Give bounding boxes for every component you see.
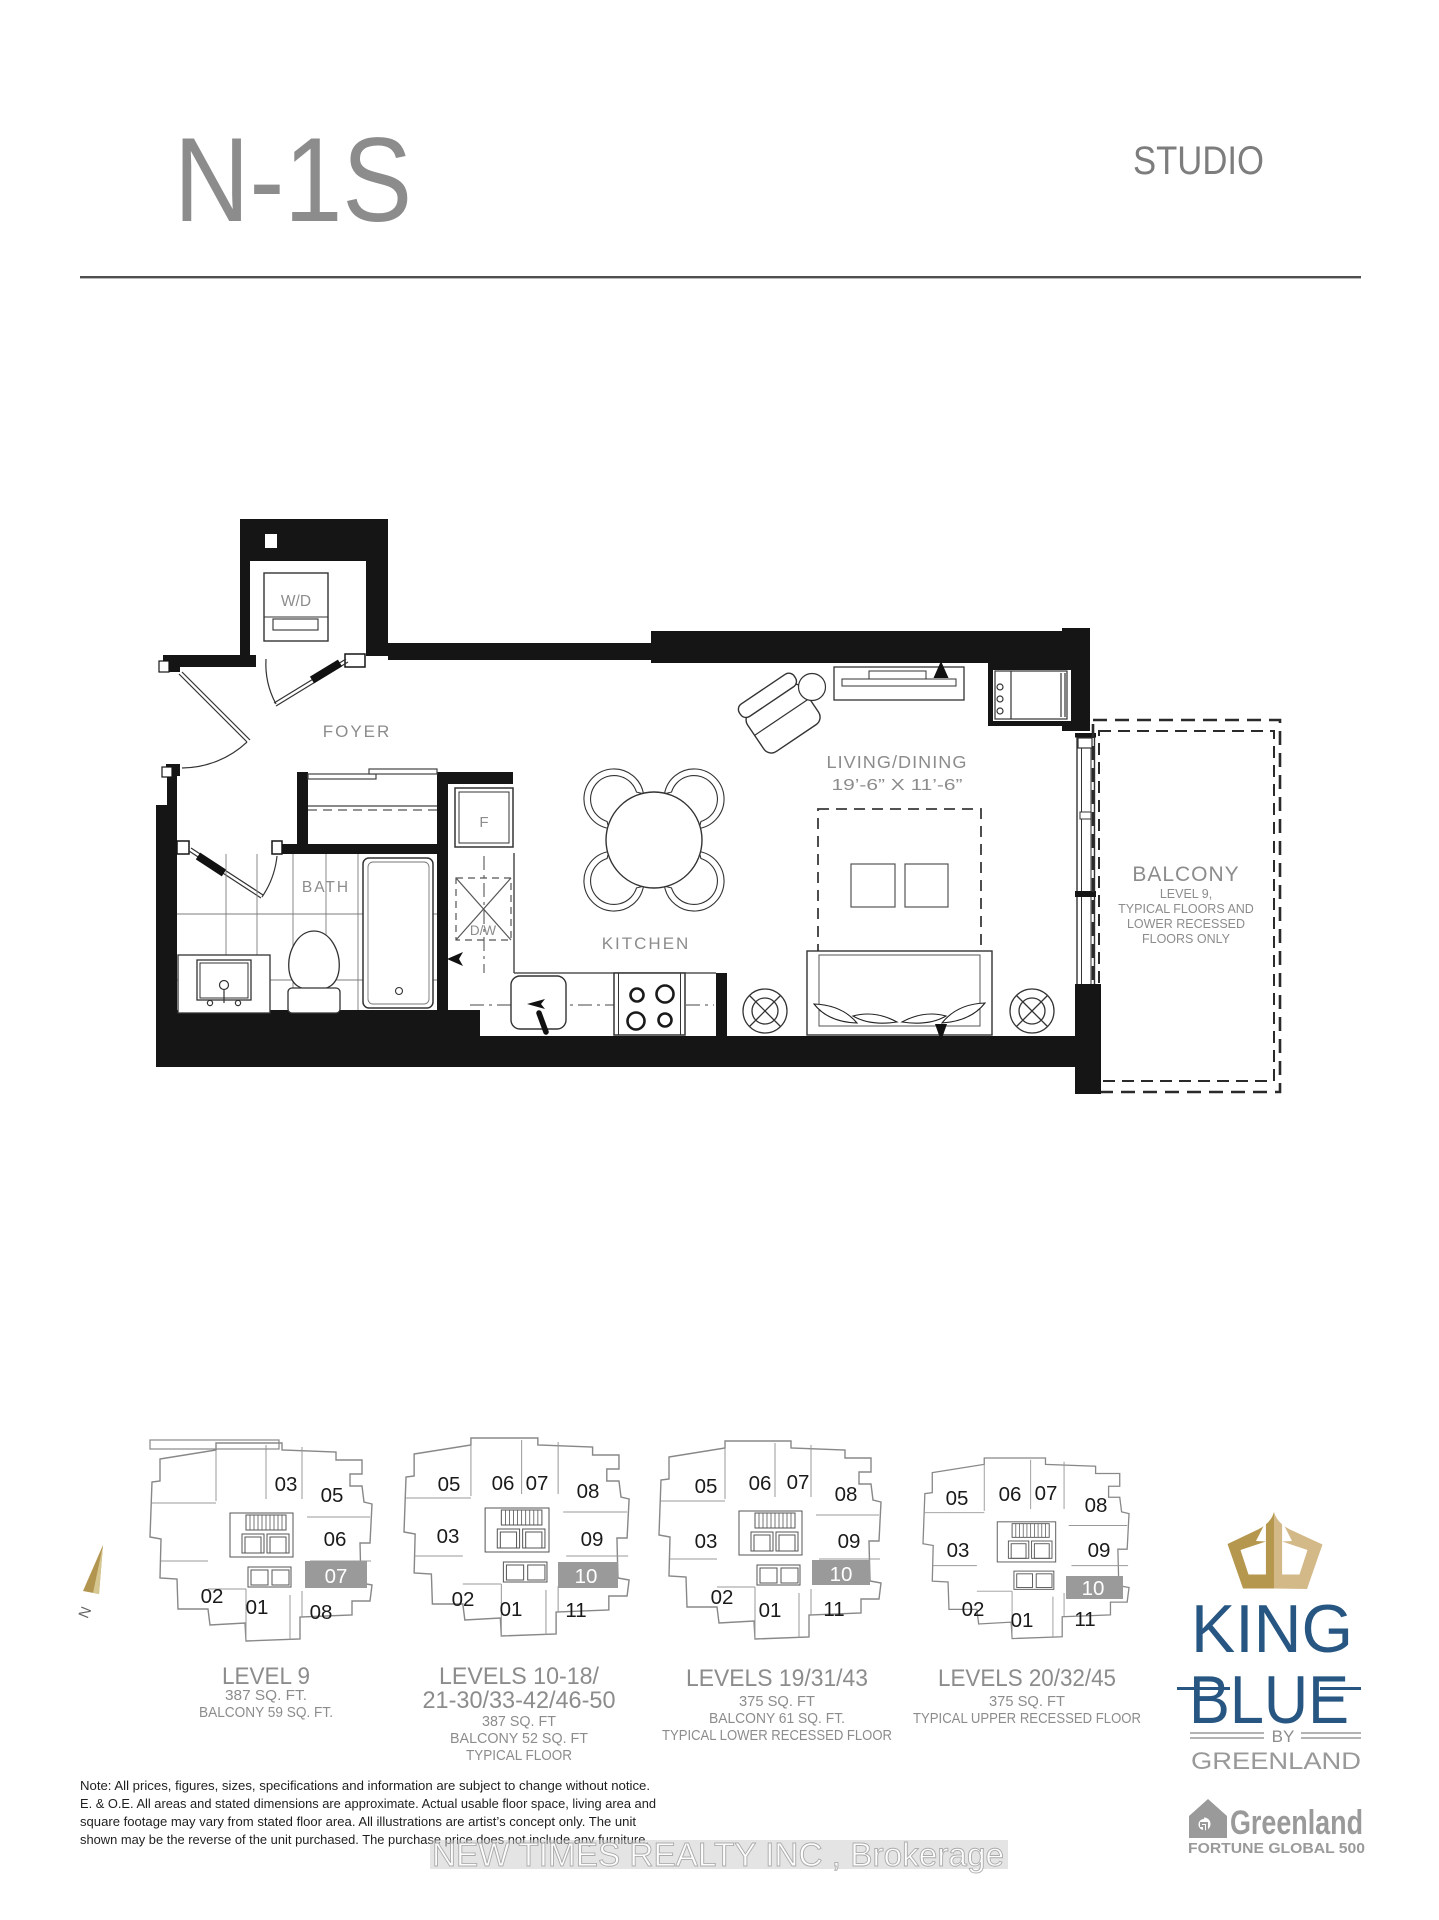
svg-text:01: 01: [500, 1598, 523, 1621]
svg-text:375 SQ. FT: 375 SQ. FT: [989, 1694, 1065, 1710]
svg-text:BATH: BATH: [302, 879, 350, 896]
svg-text:07: 07: [787, 1471, 810, 1494]
svg-text:01: 01: [246, 1596, 269, 1619]
svg-text:11: 11: [1074, 1608, 1095, 1631]
svg-text:07: 07: [526, 1472, 549, 1495]
svg-text:Greenland: Greenland: [1230, 1804, 1363, 1842]
svg-text:375 SQ. FT: 375 SQ. FT: [739, 1694, 815, 1710]
svg-text:01: 01: [759, 1599, 782, 1622]
svg-text:LEVEL 9: LEVEL 9: [222, 1663, 310, 1690]
svg-text:08: 08: [310, 1601, 333, 1624]
svg-text:KING: KING: [1191, 1591, 1353, 1667]
svg-text:BALCONY 61 SQ. FT.: BALCONY 61 SQ. FT.: [709, 1711, 845, 1727]
svg-text:FLOORS ONLY: FLOORS ONLY: [1142, 932, 1231, 946]
svg-text:09: 09: [838, 1530, 861, 1553]
svg-text:02: 02: [962, 1598, 985, 1621]
svg-text:06: 06: [749, 1472, 772, 1495]
svg-text:08: 08: [1085, 1494, 1108, 1517]
svg-text:LEVELS 19/31/43: LEVELS 19/31/43: [686, 1665, 868, 1692]
svg-text:07: 07: [325, 1565, 348, 1588]
svg-text:01: 01: [1011, 1609, 1034, 1632]
svg-text:LEVELS 20/32/45: LEVELS 20/32/45: [938, 1665, 1116, 1692]
svg-text:11: 11: [823, 1598, 844, 1621]
svg-text:TYPICAL FLOORS AND: TYPICAL FLOORS AND: [1118, 902, 1254, 916]
svg-text:F: F: [479, 814, 488, 831]
svg-text:02: 02: [711, 1586, 734, 1609]
svg-text:06: 06: [324, 1528, 347, 1551]
svg-text:LOWER RECESSED: LOWER RECESSED: [1127, 917, 1245, 931]
svg-text:W/D: W/D: [281, 593, 311, 610]
svg-text:BALCONY: BALCONY: [1132, 863, 1239, 886]
svg-text:09: 09: [1088, 1539, 1111, 1562]
svg-text:E. & O.E. All areas and stated: E. & O.E. All areas and stated dimension…: [80, 1796, 656, 1811]
svg-text:10: 10: [830, 1563, 853, 1586]
svg-text:LEVEL 9,: LEVEL 9,: [1160, 887, 1212, 901]
svg-text:05: 05: [438, 1473, 461, 1496]
svg-text:LEVELS 10-18/: LEVELS 10-18/: [439, 1663, 599, 1690]
svg-text:BALCONY 59 SQ. FT.: BALCONY 59 SQ. FT.: [199, 1705, 333, 1721]
svg-text:03: 03: [437, 1525, 460, 1548]
svg-text:square footage may vary from s: square footage may vary from stated floo…: [80, 1814, 636, 1829]
svg-text:BLUE: BLUE: [1189, 1662, 1349, 1738]
svg-text:KITCHEN: KITCHEN: [602, 934, 691, 953]
svg-text:N-1S: N-1S: [174, 113, 412, 247]
svg-text:03: 03: [275, 1473, 298, 1496]
svg-text:07: 07: [1035, 1482, 1058, 1505]
svg-text:TYPICAL UPPER RECESSED FLOOR: TYPICAL UPPER RECESSED FLOOR: [913, 1711, 1141, 1727]
svg-text:11: 11: [565, 1599, 586, 1622]
svg-text:03: 03: [947, 1539, 970, 1562]
svg-text:05: 05: [695, 1475, 718, 1498]
svg-text:387 SQ. FT: 387 SQ. FT: [482, 1714, 556, 1730]
svg-text:BALCONY 52 SQ. FT: BALCONY 52 SQ. FT: [450, 1731, 588, 1747]
svg-text:02: 02: [452, 1588, 475, 1611]
svg-text:387 SQ. FT.: 387 SQ. FT.: [225, 1688, 307, 1704]
svg-text:10: 10: [575, 1565, 598, 1588]
svg-text:STUDIO: STUDIO: [1133, 139, 1264, 183]
svg-text:FOYER: FOYER: [323, 722, 392, 741]
svg-text:08: 08: [577, 1480, 600, 1503]
svg-text:LIVING/DINING: LIVING/DINING: [827, 752, 968, 772]
svg-text:08: 08: [835, 1483, 858, 1506]
svg-text:BY: BY: [1272, 1727, 1295, 1746]
svg-text:06: 06: [492, 1472, 515, 1495]
svg-text:02: 02: [201, 1585, 224, 1608]
svg-text:06: 06: [999, 1483, 1022, 1506]
svg-text:19’-6” X 11’-6”: 19’-6” X 11’-6”: [832, 777, 963, 794]
svg-text:03: 03: [695, 1530, 718, 1553]
svg-text:Note: All prices, figures, siz: Note: All prices, figures, sizes, specif…: [80, 1778, 650, 1793]
svg-text:21-30/33-42/46-50: 21-30/33-42/46-50: [423, 1687, 616, 1714]
svg-text:TYPICAL LOWER RECESSED FLOOR: TYPICAL LOWER RECESSED FLOOR: [662, 1728, 892, 1744]
svg-text:05: 05: [946, 1487, 969, 1510]
svg-text:NEW TIMES REALTY INC , Brokera: NEW TIMES REALTY INC , Brokerage: [432, 1836, 1004, 1873]
svg-text:FORTUNE GLOBAL 500: FORTUNE GLOBAL 500: [1188, 1841, 1365, 1857]
svg-text:D/W: D/W: [470, 923, 497, 938]
svg-text:09: 09: [581, 1528, 604, 1551]
svg-text:05: 05: [321, 1484, 344, 1507]
svg-text:GREENLAND: GREENLAND: [1191, 1748, 1361, 1775]
svg-text:10: 10: [1082, 1577, 1105, 1600]
svg-text:TYPICAL FLOOR: TYPICAL FLOOR: [466, 1748, 572, 1764]
